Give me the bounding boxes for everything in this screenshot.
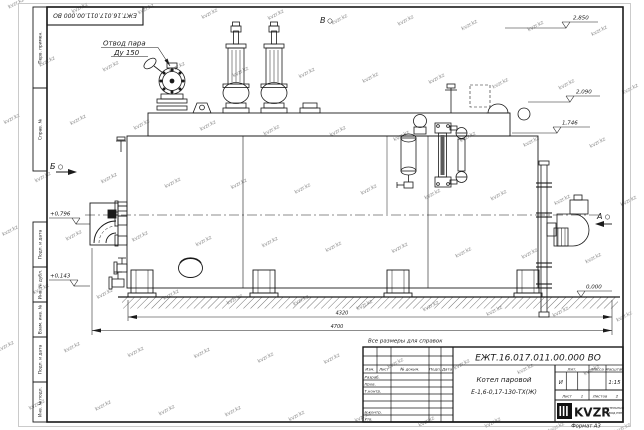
view-label-b: Б: [50, 162, 56, 171]
elevation-1746: 1,746: [562, 121, 578, 127]
view-label-v: В: [320, 16, 326, 25]
elevation-2850: 2,850: [573, 16, 589, 22]
tb-scale-header: Масштаб: [605, 366, 624, 371]
top-doc-number: ЕЖТ.16.017.011.00.000 ВО: [53, 12, 137, 19]
stamp-label: Инв. № дубл.: [38, 270, 44, 299]
tb-row-prov: Пров.: [365, 381, 376, 386]
stamp-label: Взам. инв. №: [38, 304, 44, 334]
logo-sub1: КОТЕЛЬНЫЙ: [605, 405, 624, 410]
elevation-0143: +0,143: [50, 274, 71, 280]
tb-mass-header: Масса: [591, 366, 604, 371]
drawing-canvas: kvzr.kz kvzr.kz Перв. примен. Справ. № П…: [0, 0, 644, 430]
elevation-0000: 0,000: [586, 285, 602, 291]
stamp-label: Инв. № подл.: [38, 387, 44, 417]
stamp-label: Подп. и дата: [38, 230, 44, 260]
tb-row-nkontr: Н.контр.: [365, 409, 382, 414]
stamp-label: Справ. №: [38, 119, 44, 140]
reference-note: Все размеры для справок: [368, 339, 443, 345]
format-note: Формат А3: [571, 424, 601, 430]
tb-row-razrab: Разраб.: [365, 374, 380, 379]
tb-col-doc: № докум.: [399, 367, 419, 372]
view-label-a: А: [596, 212, 602, 221]
tb-row-tkontr: Т.контр.: [365, 388, 382, 393]
tb-sheet-label: Лист: [561, 393, 573, 398]
tb-doc-number: ЕЖТ.16.017.011.00.000 ВО: [475, 354, 601, 364]
tb-product-code: Е-1,6-0,17-130-ТХ(Ж): [471, 389, 537, 396]
logo-sub2: ЗАВОД РЭП: [605, 411, 622, 415]
ground: [118, 297, 620, 309]
tb-row-utv: Утв.: [365, 416, 373, 421]
tb-lit-value: И: [559, 380, 563, 386]
tb-col-izm: Изм.: [365, 367, 374, 372]
callout-line2: Ду 150: [113, 49, 140, 57]
dim-4320: 4320: [336, 311, 349, 317]
stamp-label: Подп. и дата: [38, 345, 44, 375]
tb-col-podp: Подп.: [429, 367, 441, 372]
drawing-sheet: kvzr.kz kvzr.kz Перв. примен. Справ. № П…: [0, 0, 644, 430]
tb-sheet-value: 1: [581, 393, 583, 398]
tb-scale-value: 1:15: [608, 380, 621, 386]
stamp-label: Перв. примен.: [38, 31, 44, 63]
elevation-0796: +0,796: [50, 212, 71, 218]
tb-col-data: Дата: [441, 367, 453, 372]
elevation-2090: 2,090: [576, 90, 592, 96]
tb-product-name: Котел паровой: [477, 376, 532, 384]
callout-line1: Отвод пара: [103, 40, 146, 48]
tb-col-list: Лист: [378, 367, 390, 372]
tb-sheets-label: Листов: [592, 393, 608, 398]
tb-lit-header: Лит.: [567, 366, 577, 371]
dim-4700: 4700: [331, 324, 344, 330]
